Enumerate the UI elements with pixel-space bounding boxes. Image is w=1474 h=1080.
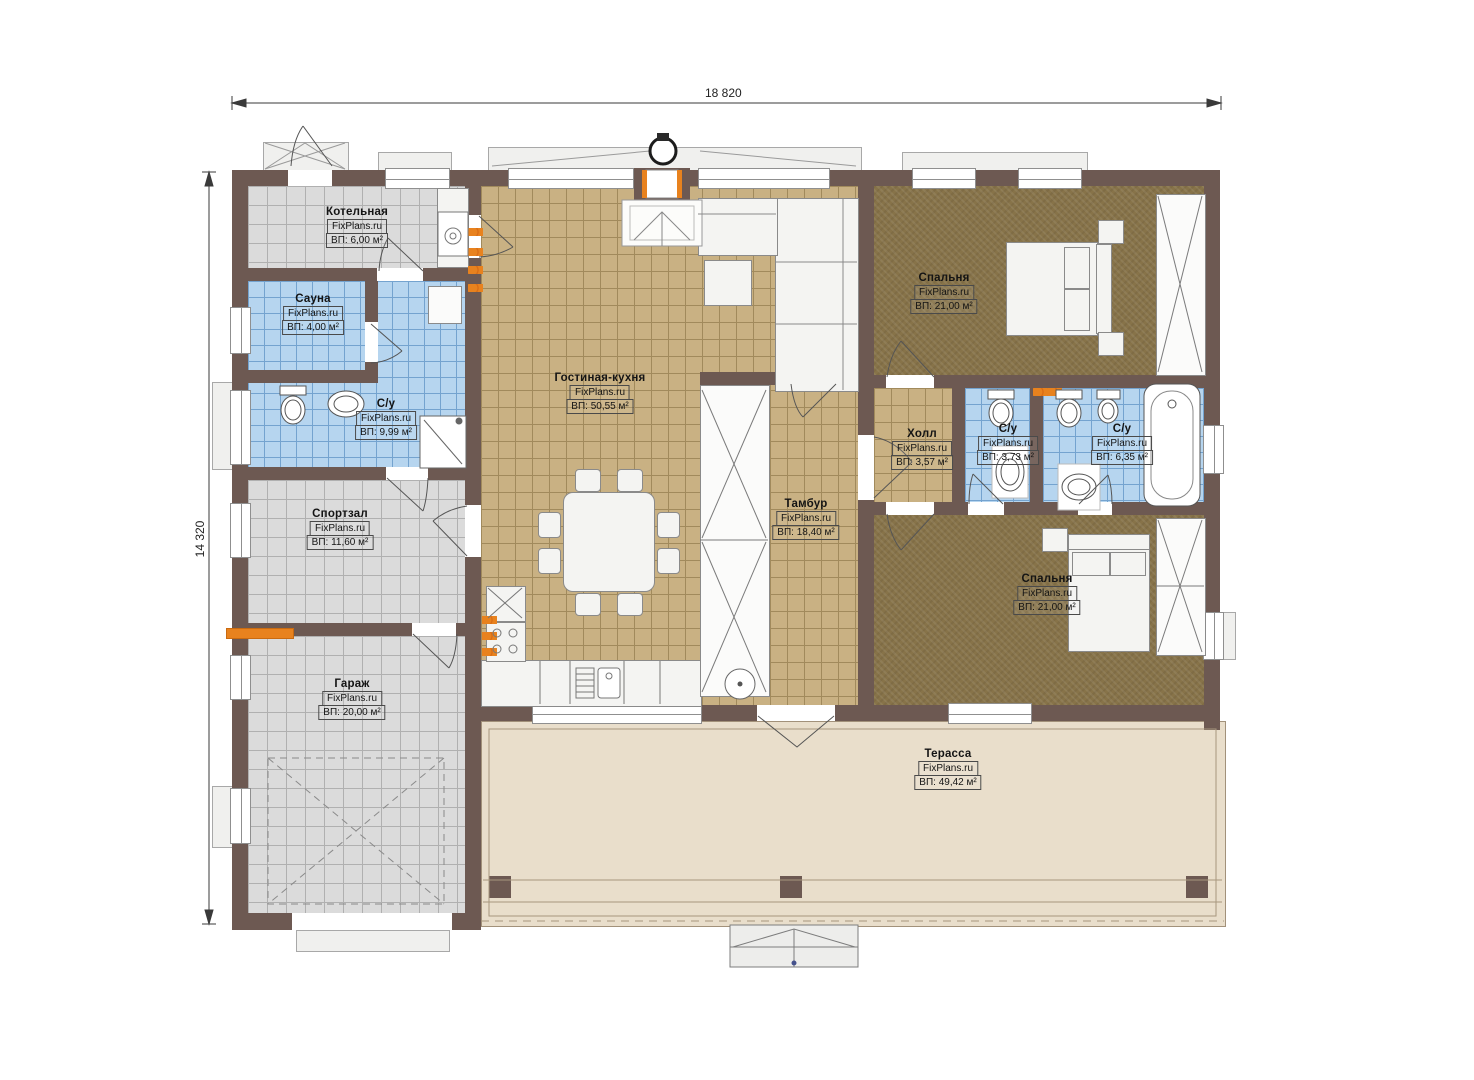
- dimension-height-label: 14 320: [193, 511, 207, 567]
- room-brand: FixPlans.ru: [918, 761, 978, 776]
- chair: [617, 593, 643, 616]
- room-label-vestibule: Тамбур FixPlans.ru ВП: 18,40 м²: [772, 498, 839, 540]
- terrace-deck: [481, 721, 1226, 927]
- radiator: [468, 266, 483, 274]
- gym-floor: [248, 480, 465, 623]
- window: [230, 788, 251, 844]
- wall-segment: [465, 705, 481, 930]
- room-name: Котельная: [326, 206, 388, 218]
- room-brand: FixPlans.ru: [914, 285, 974, 300]
- door-opening: [858, 435, 874, 500]
- wall-segment: [452, 913, 465, 930]
- wall-segment: [248, 268, 377, 281]
- headboard: [1096, 244, 1112, 334]
- wall-segment: [232, 842, 248, 930]
- wardrobe: [1156, 194, 1206, 376]
- wall-segment: [1030, 705, 1220, 721]
- room-label-bathroom-left: С/у FixPlans.ru ВП: 9,99 м²: [355, 398, 417, 440]
- radiator: [468, 228, 483, 236]
- pillow: [1064, 247, 1090, 289]
- room-area: ВП: 3,57 м²: [891, 455, 953, 470]
- chair: [538, 512, 561, 538]
- door-opening: [365, 322, 378, 362]
- nightstand: [1098, 220, 1124, 244]
- wall-segment: [1004, 502, 1078, 515]
- room-label-living-kitchen: Гостиная-кухня FixPlans.ru ВП: 50,55 м²: [555, 372, 646, 414]
- room-area: ВП: 4,00 м²: [282, 320, 344, 335]
- wall-segment: [465, 557, 481, 705]
- room-label-hall: Холл FixPlans.ru ВП: 3,57 м²: [891, 428, 953, 470]
- wall-segment: [1112, 502, 1204, 515]
- garage-door-opening: [292, 913, 452, 930]
- wall-segment: [232, 352, 248, 390]
- room-label-terrace: Терасса FixPlans.ru ВП: 49,42 м²: [914, 748, 981, 790]
- room-label-boiler: Котельная FixPlans.ru ВП: 6,00 м²: [326, 206, 388, 248]
- window: [230, 307, 251, 354]
- radiator: [468, 248, 483, 256]
- chair: [657, 512, 680, 538]
- garage-apron: [296, 930, 450, 952]
- radiator: [482, 632, 497, 640]
- wall-segment: [232, 698, 248, 788]
- wall-segment: [700, 705, 757, 721]
- room-name: Гостиная-кухня: [555, 372, 646, 384]
- window: [912, 168, 976, 189]
- wall-segment: [232, 170, 248, 307]
- room-name: С/у: [1091, 423, 1153, 435]
- wall-segment: [632, 170, 698, 186]
- room-area: ВП: 20,00 м²: [318, 705, 385, 720]
- room-name: Спальня: [910, 272, 977, 284]
- wall-segment: [248, 913, 292, 930]
- door-opening: [377, 268, 423, 281]
- radiator: [482, 616, 497, 624]
- window: [1203, 612, 1224, 660]
- room-name: Сауна: [282, 293, 344, 305]
- room-label-gym: Спортзал FixPlans.ru ВП: 11,60 м²: [307, 508, 374, 550]
- porch-slab: [263, 142, 349, 172]
- nightstand: [1042, 528, 1068, 552]
- wall-segment: [423, 268, 465, 281]
- radiator-bar: [226, 628, 294, 639]
- wall-segment: [456, 623, 465, 636]
- wall-segment: [1204, 170, 1220, 425]
- wall-segment: [365, 281, 378, 322]
- radiator: [1033, 388, 1048, 396]
- door-opening: [968, 502, 1004, 515]
- door-opening: [288, 170, 332, 186]
- room-label-bedroom-top: Спальня FixPlans.ru ВП: 21,00 м²: [910, 272, 977, 314]
- room-brand: FixPlans.ru: [570, 385, 630, 400]
- room-name: С/у: [977, 423, 1039, 435]
- kitchen-counter: [481, 660, 702, 707]
- room-area: ВП: 3,73 м²: [977, 450, 1039, 465]
- room-area: ВП: 49,42 м²: [914, 775, 981, 790]
- wall-segment: [481, 705, 532, 721]
- room-name: Спортзал: [307, 508, 374, 520]
- room-name: Тамбур: [772, 498, 839, 510]
- room-brand: FixPlans.ru: [1092, 436, 1152, 451]
- window: [1018, 168, 1082, 189]
- terrace-post: [489, 876, 511, 898]
- water-heater: [428, 286, 462, 324]
- radiator: [482, 648, 497, 656]
- room-name: Терасса: [914, 748, 981, 760]
- wardrobe: [700, 385, 770, 697]
- room-brand: FixPlans.ru: [356, 411, 416, 426]
- room-label-bathroom-master: С/у FixPlans.ru ВП: 6,35 м²: [1091, 423, 1153, 465]
- wall-segment: [248, 467, 386, 480]
- wall-segment: [934, 375, 1204, 388]
- door-opening: [886, 375, 934, 388]
- room-name: Холл: [891, 428, 953, 440]
- room-brand: FixPlans.ru: [327, 219, 387, 234]
- window: [508, 168, 634, 189]
- coffee-table: [704, 260, 752, 306]
- window: [230, 503, 251, 558]
- pillow: [1110, 552, 1146, 576]
- window: [1203, 425, 1224, 474]
- radiator: [1047, 388, 1062, 396]
- boiler-counter: [437, 188, 469, 268]
- window: [230, 390, 251, 465]
- sofa-chaise: [698, 198, 778, 256]
- door-opening: [386, 467, 428, 480]
- dimension-width-label: 18 820: [705, 86, 742, 100]
- wall-segment: [465, 258, 481, 505]
- pillow: [1064, 289, 1090, 331]
- room-label-bathroom-small: С/у FixPlans.ru ВП: 3,73 м²: [977, 423, 1039, 465]
- kitchen-stove: [486, 622, 526, 662]
- room-brand: FixPlans.ru: [776, 511, 836, 526]
- door-opening: [1078, 502, 1112, 515]
- wall-segment: [1204, 472, 1220, 612]
- chair: [538, 548, 561, 574]
- wall-segment: [858, 170, 874, 435]
- wall-segment: [874, 502, 886, 515]
- room-name: Гараж: [318, 678, 385, 690]
- window: [230, 655, 251, 700]
- wall-segment: [835, 705, 948, 721]
- room-brand: FixPlans.ru: [310, 521, 370, 536]
- chair: [657, 548, 680, 574]
- door-opening: [886, 502, 934, 515]
- dining-table: [563, 492, 655, 592]
- room-name: Спальня: [1013, 573, 1080, 585]
- room-name: С/у: [355, 398, 417, 410]
- wardrobe: [1156, 518, 1206, 656]
- room-label-sauna: Сауна FixPlans.ru ВП: 4,00 м²: [282, 293, 344, 335]
- terrace-post: [780, 876, 802, 898]
- window: [698, 168, 830, 189]
- wall-segment: [934, 502, 968, 515]
- sofa: [775, 198, 859, 392]
- room-label-garage: Гараж FixPlans.ru ВП: 20,00 м²: [318, 678, 385, 720]
- nightstand: [1098, 332, 1124, 356]
- chair: [575, 469, 601, 492]
- wall-segment: [248, 370, 378, 383]
- room-brand: FixPlans.ru: [283, 306, 343, 321]
- room-area: ВП: 21,00 м²: [910, 299, 977, 314]
- wall-segment: [1080, 170, 1220, 186]
- wall-segment: [952, 388, 965, 502]
- wall-segment: [428, 467, 465, 480]
- room-brand: FixPlans.ru: [978, 436, 1038, 451]
- room-area: ВП: 9,99 м²: [355, 425, 417, 440]
- room-brand: FixPlans.ru: [1017, 586, 1077, 601]
- headboard: [1068, 534, 1150, 550]
- floor-plan-canvas: Котельная FixPlans.ru ВП: 6,00 м² Сауна …: [0, 0, 1474, 1080]
- chair: [575, 593, 601, 616]
- room-area: ВП: 18,40 м²: [772, 525, 839, 540]
- room-area: ВП: 6,00 м²: [326, 233, 388, 248]
- door-opening: [465, 505, 481, 557]
- wall-segment: [232, 556, 248, 655]
- chair: [617, 469, 643, 492]
- wall-segment: [332, 170, 385, 186]
- room-label-bedroom-bottom: Спальня FixPlans.ru ВП: 21,00 м²: [1013, 573, 1080, 615]
- room-area: ВП: 50,55 м²: [566, 399, 633, 414]
- room-brand: FixPlans.ru: [892, 441, 952, 456]
- window: [948, 703, 1032, 724]
- room-area: ВП: 6,35 м²: [1091, 450, 1153, 465]
- room-area: ВП: 11,60 м²: [307, 535, 374, 550]
- entrance-door-opening: [757, 705, 835, 721]
- radiator: [468, 284, 483, 292]
- wall-segment: [974, 170, 1018, 186]
- door-opening: [412, 623, 456, 636]
- wall-segment: [365, 362, 378, 370]
- terrace-post: [1186, 876, 1208, 898]
- terrace-steps: [730, 925, 858, 967]
- wall-segment: [232, 463, 248, 503]
- wall-segment: [858, 500, 874, 705]
- room-area: ВП: 21,00 м²: [1013, 600, 1080, 615]
- window: [385, 168, 450, 189]
- room-brand: FixPlans.ru: [322, 691, 382, 706]
- wall-segment: [874, 375, 886, 388]
